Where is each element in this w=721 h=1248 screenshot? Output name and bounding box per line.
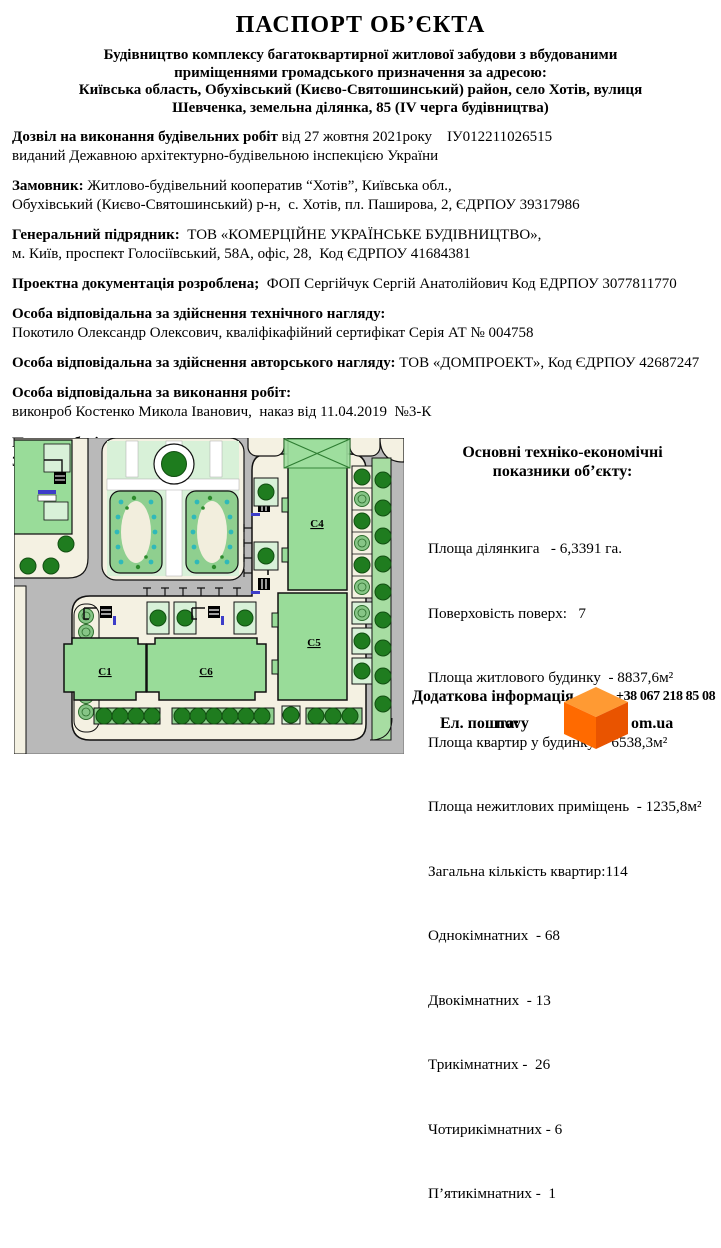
- extra-info-label: Додаткова інформація: [412, 688, 574, 706]
- customer-value: Житлово-будівельний кооператив “Хотів”, …: [84, 178, 452, 194]
- tech-supervision-label: Особа відповідальна за здійснення техніч…: [12, 306, 385, 322]
- indicators-panel: Основні техніко-економічні показники об’…: [404, 437, 721, 1248]
- address-line: Будівництво комплексу багатоквартирної ж…: [0, 47, 721, 65]
- building-label-c6: С6: [199, 666, 213, 678]
- permit-label: Дозвіл на виконання будівельних робіт: [12, 129, 278, 145]
- top-left-building-block: [14, 438, 88, 578]
- cube-logo-icon: [560, 685, 632, 751]
- permit-value: від 27 жовтня 2021року ІУ012211026515: [278, 129, 552, 145]
- building-label-c5: С5: [307, 637, 321, 649]
- page-title: ПАСПОРТ ОБ’ЄКТА: [0, 0, 721, 39]
- design-label: Проектна документація розроблена;: [12, 276, 259, 292]
- customer-address: Обухівський (Києво-Святошинський) р-н, с…: [12, 197, 580, 213]
- bottom-tree-strips: [94, 706, 362, 724]
- indicator-item: Однокімнатних - 68: [428, 925, 721, 947]
- passport-details: Дозвіл на виконання будівельних робіт ві…: [12, 128, 709, 472]
- roundabout: [154, 444, 194, 484]
- design-paragraph: Проектна документація розроблена; ФОП Се…: [12, 275, 709, 294]
- works-person-label: Особа відповідальна за виконання робіт:: [12, 385, 291, 401]
- contractor-address: м. Київ, проспект Голосіївський, 58А, оф…: [12, 246, 471, 262]
- building-c5: С5: [272, 593, 347, 700]
- object-address: Будівництво комплексу багатоквартирної ж…: [0, 47, 721, 117]
- building-c6: С6: [147, 638, 266, 700]
- indicator-item: Загальна кількість квартир:114: [428, 861, 721, 883]
- building-c1: С1: [64, 638, 146, 700]
- email-fragment-right: om.ua: [631, 715, 673, 733]
- contractor-value: ТОВ «КОМЕРЦІЙНЕ УКРАЇНСЬКЕ БУДІВНИЦТВО»,: [180, 227, 542, 243]
- right-planter-column: [352, 466, 372, 684]
- indicator-item: Площа нежитлових приміщень - 1235,8м²: [428, 796, 721, 818]
- author-supervision-paragraph: Особа відповідальна за здійснення авторс…: [12, 354, 709, 373]
- contractor-label: Генеральний підрядник:: [12, 227, 180, 243]
- customer-label: Замовник:: [12, 178, 84, 194]
- works-person-value: виконроб Костенко Микола Іванович, наказ…: [12, 404, 431, 420]
- address-line: Київська область, Обухівський (Києво-Свя…: [0, 82, 721, 100]
- passport-document-page: { "header": { "title": "ПАСПОРТ ОБ’ЄКТА"…: [0, 0, 721, 754]
- site-plan-map: С4 С5 С1 С6: [14, 438, 404, 754]
- indicators-heading: Основні техніко-економічні показники об’…: [404, 443, 721, 481]
- contractor-paragraph: Генеральний підрядник: ТОВ «КОМЕРЦІЙНЕ У…: [12, 226, 709, 264]
- building-label-c1: С1: [98, 666, 111, 678]
- hatched-area: [284, 439, 350, 468]
- works-person-paragraph: Особа відповідальна за виконання робіт:в…: [12, 384, 709, 422]
- address-line: приміщеннями громадського призначення за…: [0, 65, 721, 83]
- indicator-item: Поверховість поверх: 7: [428, 603, 721, 625]
- permit-issuer: виданий Дежавною архітектурно-будівельно…: [12, 148, 438, 164]
- tech-supervision-person: Покотило Олександр Олексович, кваліфікаф…: [12, 325, 534, 341]
- indicator-item: Чотирикімнатних - 6: [428, 1119, 721, 1141]
- author-supervision-value: ТОВ «ДОМПРОЕКТ», Код ЄДРПОУ 42687247: [396, 355, 700, 371]
- tech-supervision-paragraph: Особа відповідальна за здійснення техніч…: [12, 305, 709, 343]
- site-plan-svg: С4 С5 С1 С6: [14, 438, 404, 754]
- indicator-item: Двокімнатних - 13: [428, 990, 721, 1012]
- customer-paragraph: Замовник: Житлово-будівельний кооператив…: [12, 177, 709, 215]
- left-sidewalk: [14, 586, 26, 754]
- design-value: ФОП Сергійчук Сергій Анатолійович Код ЕД…: [259, 276, 677, 292]
- author-supervision-label: Особа відповідальна за здійснення авторс…: [12, 355, 396, 371]
- building-c4: С4: [282, 438, 350, 590]
- indicator-item: Площа ділянкига - 6,3391 га.: [428, 538, 721, 560]
- indicators-list: Площа ділянкига - 6,3391 га. Поверховіст…: [404, 495, 721, 1248]
- permit-paragraph: Дозвіл на виконання будівельних робіт ві…: [12, 128, 709, 166]
- right-tree-strip: [372, 458, 391, 740]
- address-line: Шевченка, земельна ділянка, 85 (IV черга…: [0, 100, 721, 118]
- building-label-c4: С4: [310, 518, 324, 530]
- indicator-item: П’ятикімнатних - 1: [428, 1183, 721, 1205]
- park-block: [102, 438, 244, 580]
- indicators-heading-line2: показники об’єкту:: [493, 463, 633, 480]
- indicator-item: Трикімнатних - 26: [428, 1054, 721, 1076]
- indicators-heading-line1: Основні техніко-економічні: [462, 444, 662, 461]
- bottom-section: С4 С5 С1 С6: [0, 437, 721, 754]
- email-fragment-left: novy: [496, 715, 529, 733]
